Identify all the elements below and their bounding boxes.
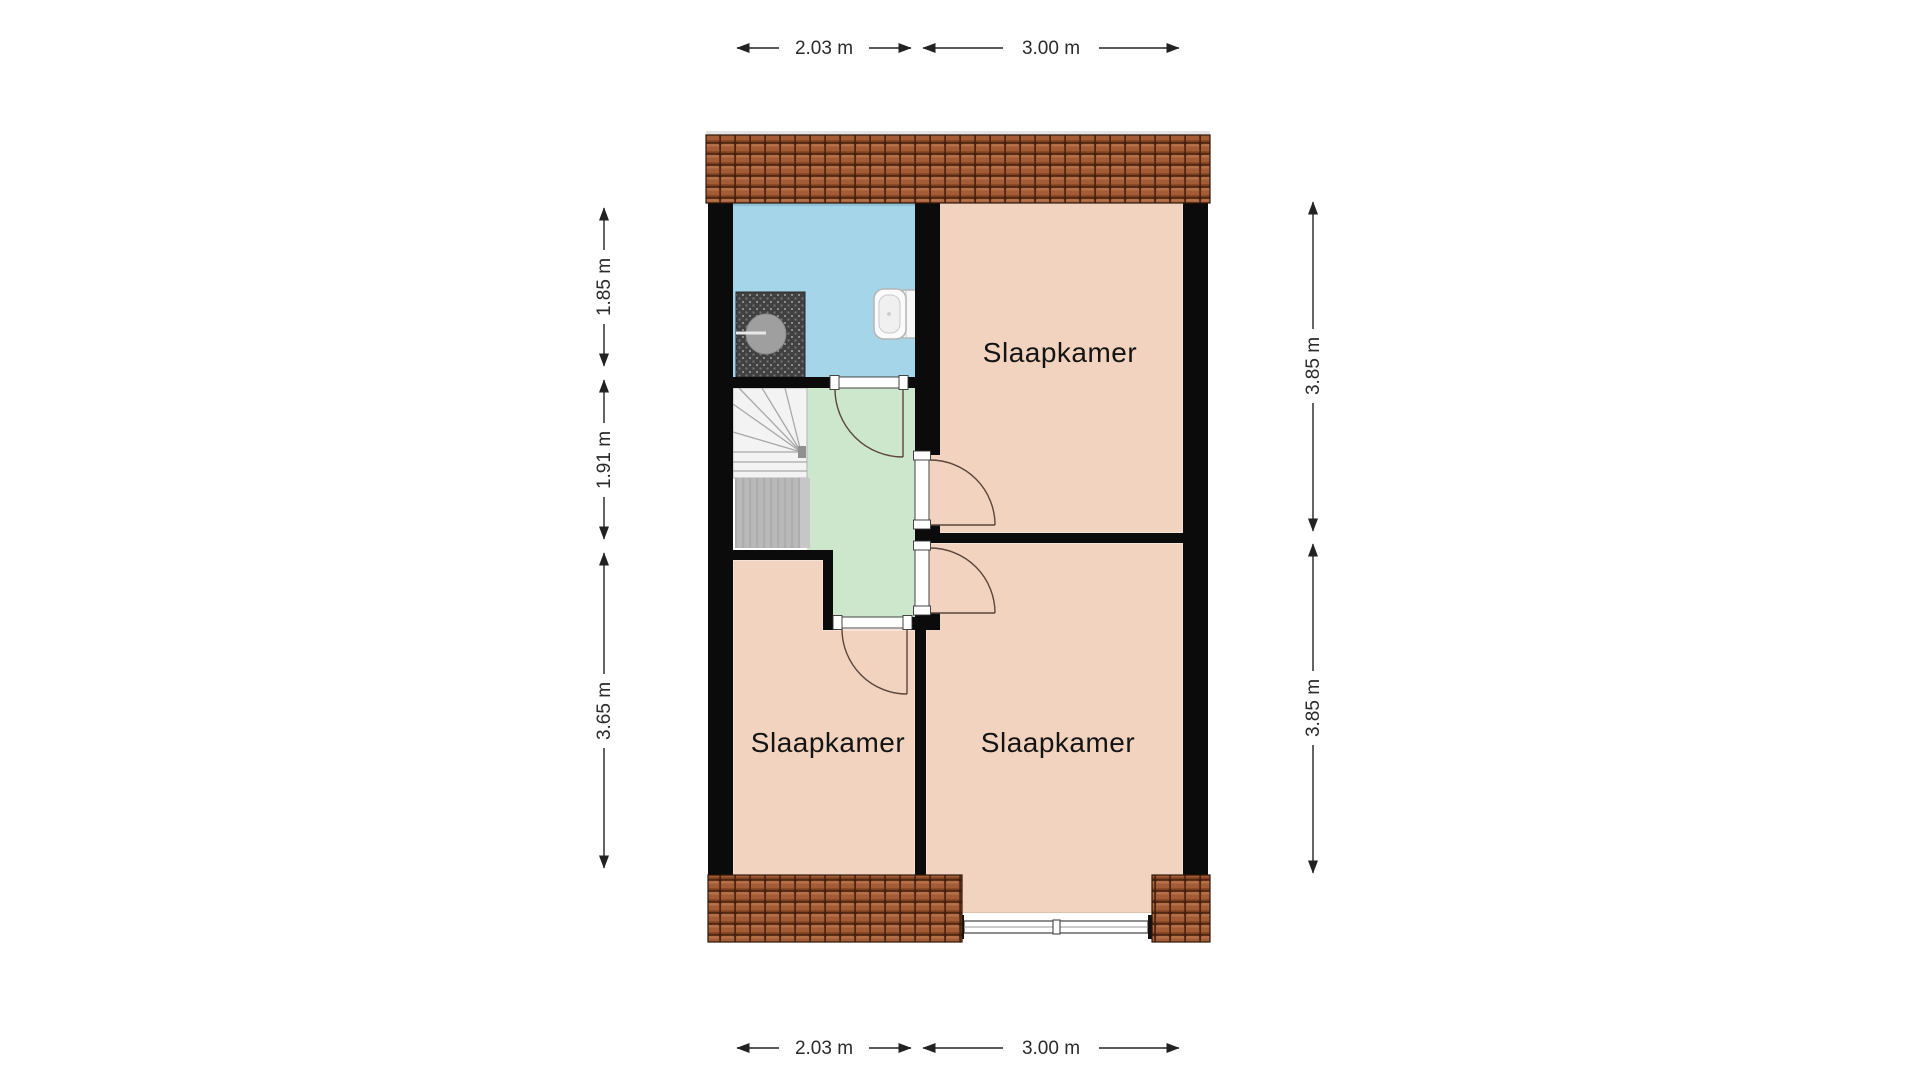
toilet — [874, 289, 917, 339]
shower — [736, 292, 805, 377]
roof-top — [706, 135, 1210, 203]
room-label-bedroom-bottom-left: Slaapkamer — [751, 727, 905, 758]
staircase-lower-flight — [735, 478, 810, 548]
dim-label-left-1: 1.85 m — [594, 258, 615, 316]
wall-left — [708, 203, 733, 875]
room-bedroom-bottom-right-floor — [926, 543, 1183, 875]
floorplan-svg: Slaapkamer Slaapkamer Slaapkamer — [0, 0, 1919, 1080]
dim-label-left-3: 3.65 m — [594, 682, 615, 740]
staircase — [733, 388, 810, 548]
wall-mid-below-doors — [915, 613, 940, 630]
floorplan-canvas: Slaapkamer Slaapkamer Slaapkamer — [0, 0, 1919, 1080]
dim-label-bottom-left: 2.03 m — [795, 1038, 853, 1059]
wall-right — [1183, 203, 1208, 875]
room-bedroom-top-right-floor — [929, 203, 1183, 533]
dim-label-bottom-right: 3.00 m — [1022, 1038, 1080, 1059]
wall-divider-right-bedrooms — [929, 533, 1183, 543]
dim-label-right-2: 3.85 m — [1303, 679, 1324, 737]
staircase-newel — [798, 446, 806, 458]
window — [958, 913, 1154, 942]
wall-mid-upper — [915, 203, 940, 455]
wall-hall-west — [823, 550, 833, 630]
window-mullion — [1053, 920, 1060, 934]
dim-label-left-2: 1.91 m — [594, 431, 615, 489]
room-label-bedroom-bottom-right: Slaapkamer — [981, 727, 1135, 758]
dim-label-right-1: 3.85 m — [1303, 337, 1324, 395]
staircase-stringer — [800, 478, 810, 548]
roof-bottom-right — [1152, 875, 1210, 942]
room-label-bedroom-top-right: Slaapkamer — [983, 337, 1137, 368]
room-bedroom-bottom-right-window-bay — [962, 873, 1152, 913]
wall-stairs-south — [733, 550, 833, 560]
wall-mid-lower — [915, 630, 926, 875]
roof-bottom-left — [708, 875, 962, 942]
wall-bathroom-south-a — [733, 377, 835, 388]
dim-label-top-right: 3.00 m — [1022, 38, 1080, 59]
dim-label-top-left: 2.03 m — [795, 38, 853, 59]
